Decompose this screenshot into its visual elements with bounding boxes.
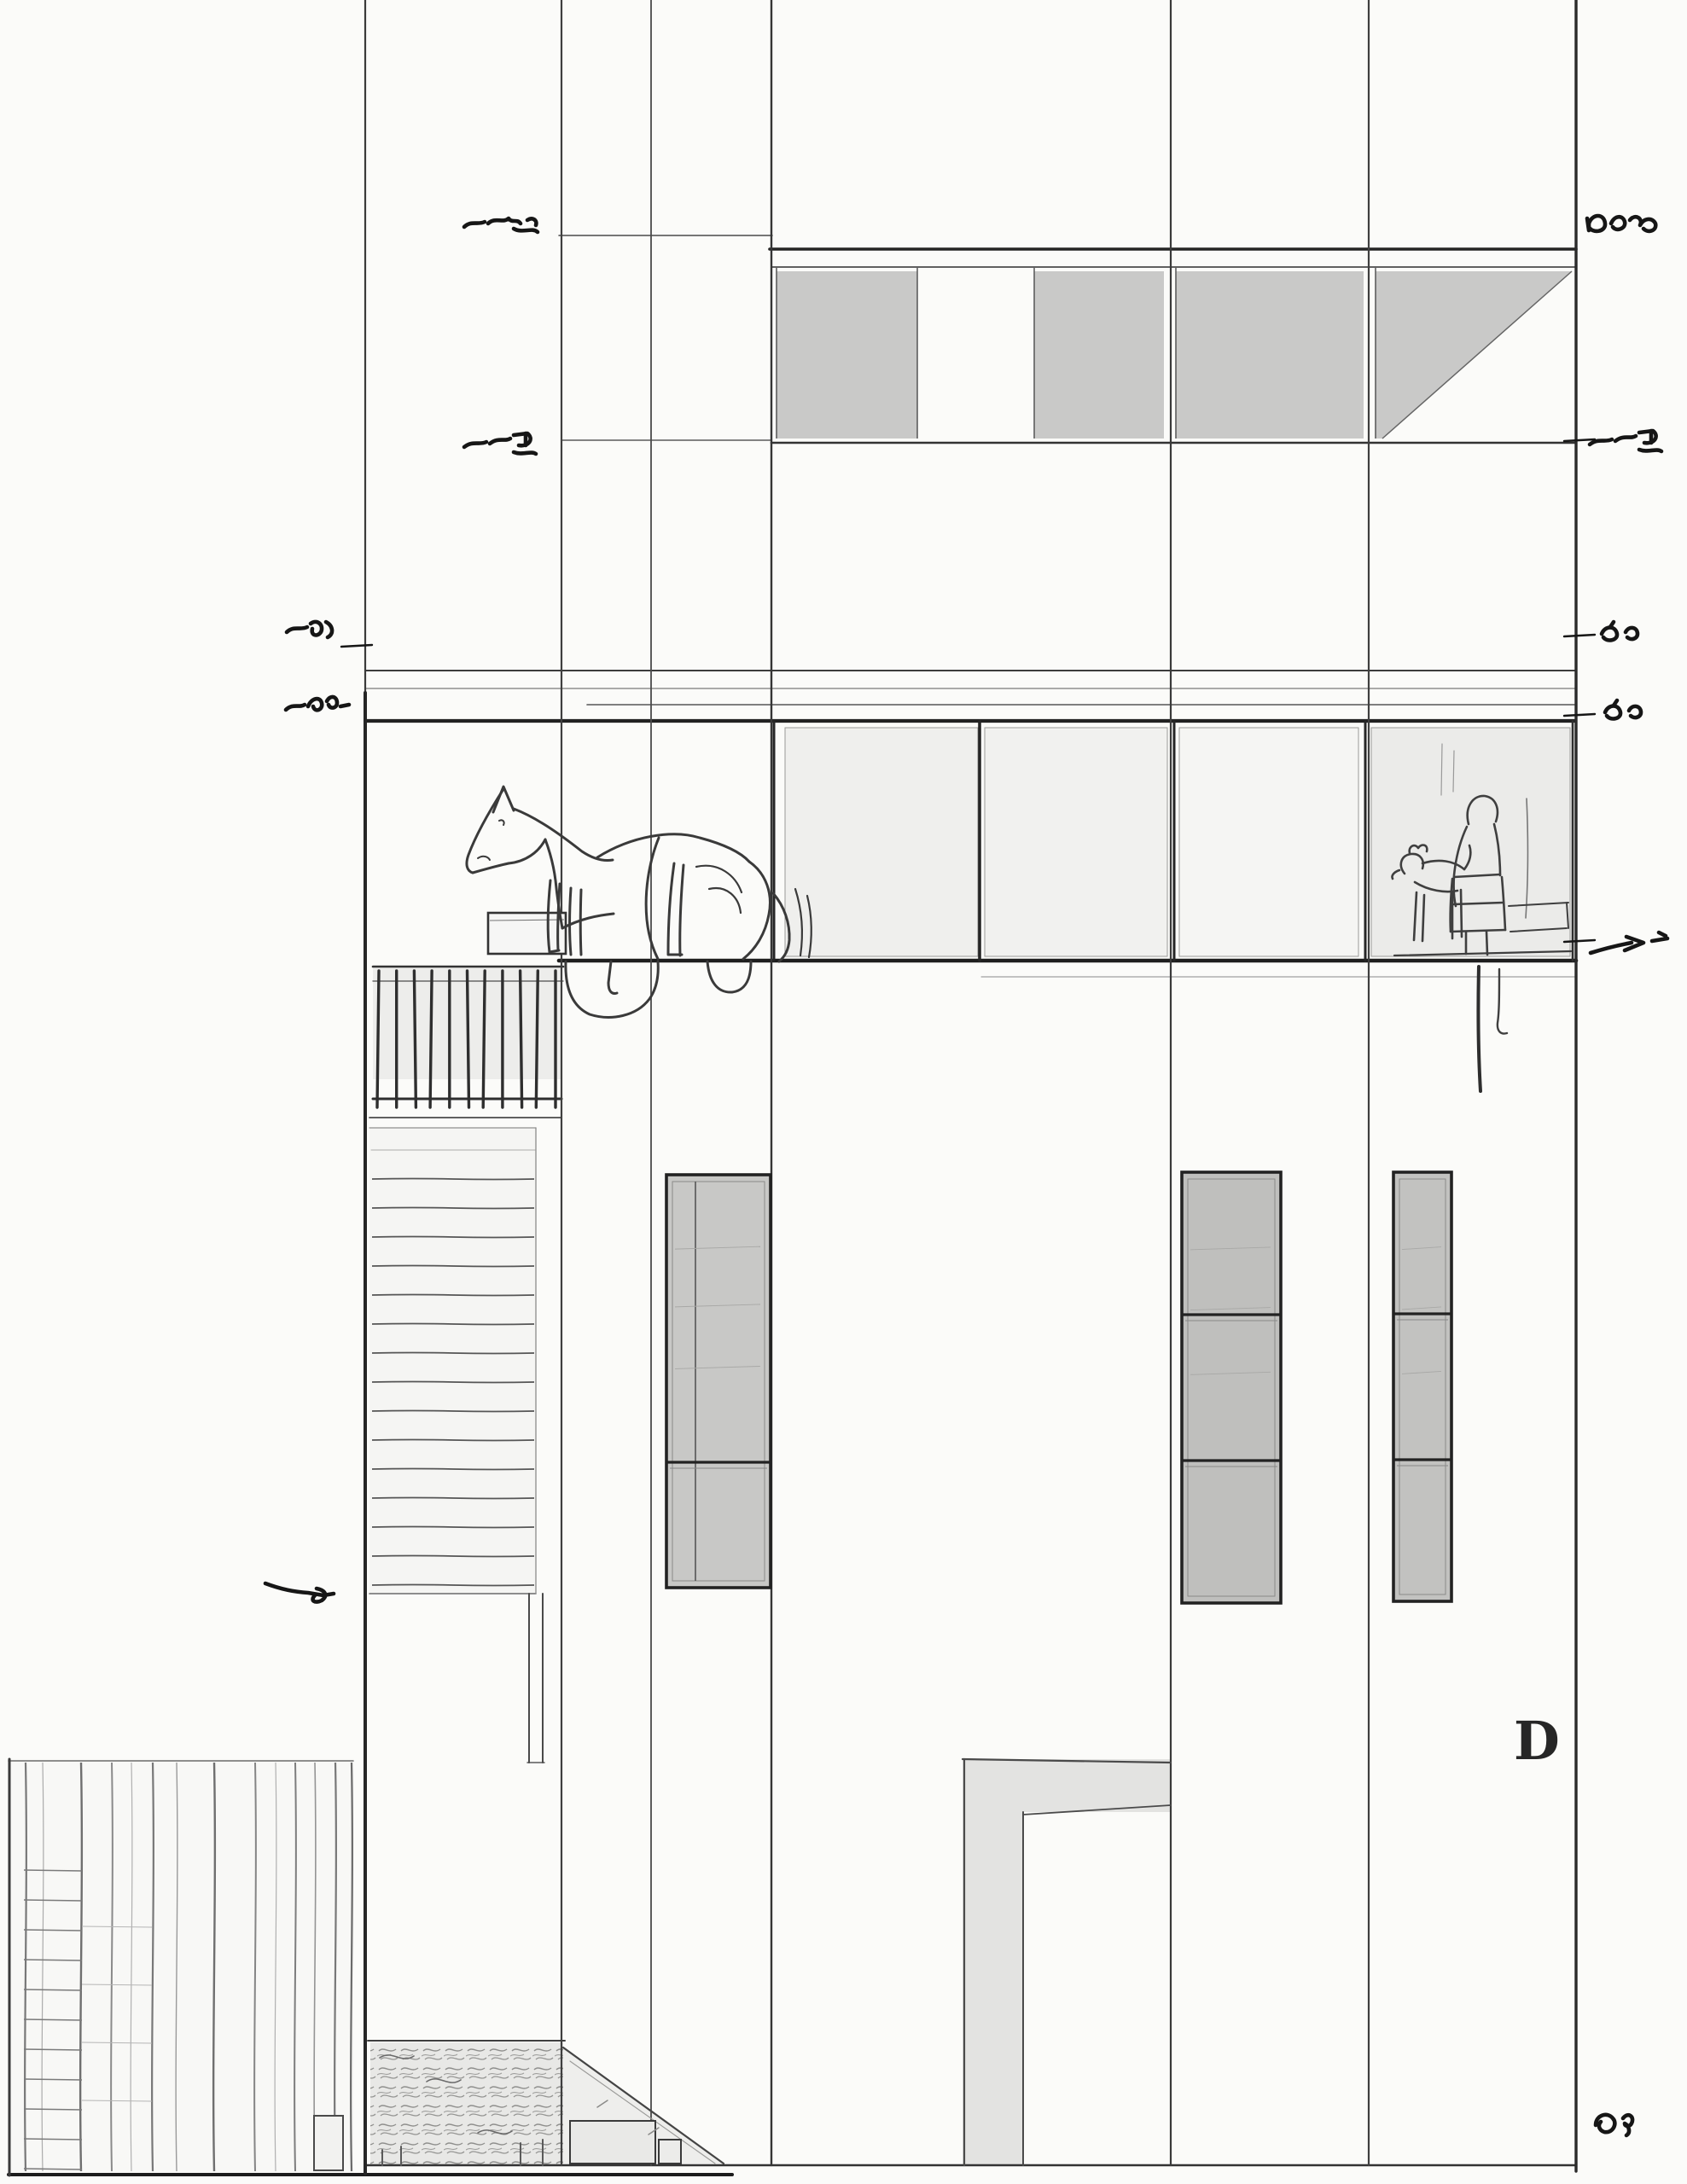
level-mark-r3 [1602, 622, 1638, 640]
ladder-rung-6 [24, 2049, 82, 2050]
elevation-drawing: D [0, 0, 1687, 2184]
level-mark-l3 [287, 622, 332, 637]
window-left-frame [666, 1175, 771, 1588]
siding-block-fill [9, 1759, 354, 2174]
horse-back [597, 834, 749, 862]
level-mark-r2 [1590, 431, 1661, 451]
curtain-pane-1 [985, 728, 1167, 956]
curtain-pane-0 [785, 728, 978, 956]
horse-rump [743, 862, 770, 959]
baluster-3 [430, 971, 432, 1107]
planter-box [488, 913, 566, 954]
horse-neck [514, 809, 613, 861]
curtain-pane-3 [1371, 728, 1570, 956]
slat-line-6 [372, 1352, 534, 1353]
ladder-rung-5 [24, 2019, 82, 2020]
slat-line-8 [372, 1410, 534, 1411]
slat-line-13 [372, 1555, 534, 1556]
upper-panel-3 [1176, 271, 1364, 439]
baluster-5 [468, 971, 469, 1107]
siding-hatch-box [314, 2116, 343, 2170]
slat-line-2 [372, 1236, 534, 1237]
window-right-frame [1393, 1172, 1451, 1601]
baluster-9 [536, 971, 538, 1107]
level-mark-l4 [286, 697, 349, 710]
level-mark-bottom-right [1596, 2115, 1632, 2135]
door-portal-fill [963, 1759, 1171, 2165]
window-left [666, 1175, 771, 1588]
slat-line-1 [372, 1207, 534, 1208]
edge-tick-l3 [341, 645, 372, 647]
baluster-6 [483, 971, 485, 1107]
ladder-rung-7 [24, 2079, 82, 2080]
wall-fills [9, 967, 1171, 2174]
window-right [1393, 1172, 1451, 1601]
ladder-rung-9 [24, 2139, 82, 2140]
baluster-2 [414, 971, 416, 1107]
ladder-rung-10 [24, 2169, 82, 2169]
punched-windows [666, 1172, 1451, 1603]
horse-hind-loop [707, 961, 751, 992]
slat-line-10 [372, 1468, 534, 1469]
level-mark-r4 [1605, 700, 1641, 718]
slat-line-14 [372, 1584, 534, 1585]
window-mid-frame [1182, 1172, 1281, 1603]
slat-line-12 [372, 1526, 534, 1527]
level-mark-l1 [464, 218, 538, 232]
ladder-rung-4 [24, 1989, 82, 1990]
slat-line-3 [372, 1265, 534, 1266]
slat-line-0 [372, 1178, 534, 1179]
baluster-0 [377, 971, 379, 1107]
curtain-pane-2 [1179, 728, 1358, 956]
slat-line-9 [372, 1439, 534, 1440]
upper-panel-triangle [1376, 271, 1572, 439]
slat-line-11 [372, 1497, 534, 1498]
horse-front-loop [566, 961, 658, 1017]
edge-tick-r4 [1564, 714, 1595, 716]
upper-window-band [777, 268, 1572, 439]
baluster-8 [521, 971, 522, 1107]
slat-line-4 [372, 1294, 534, 1295]
slat-line-5 [372, 1323, 534, 1324]
level-mark-l2 [464, 433, 536, 454]
leader-arrow-right [1591, 932, 1667, 953]
slat-line-7 [372, 1381, 534, 1382]
edge-tick-r2 [1564, 439, 1595, 441]
ladder-rung-8 [24, 2109, 82, 2110]
slat-screen-fill [369, 1128, 536, 1594]
logo-letter-d: D [1514, 1710, 1560, 1772]
hatch-structure-texture [370, 2042, 563, 2165]
ladder-rung-0 [24, 1870, 82, 1871]
leader-arrow-left [265, 1583, 334, 1602]
edge-tick-r3 [1564, 635, 1595, 636]
window-mid [1182, 1172, 1281, 1603]
upper-panel-2 [1034, 271, 1164, 439]
upper-panel-0 [777, 271, 917, 439]
ladder-rung-2 [24, 1930, 82, 1931]
ladder-rung-3 [24, 1960, 82, 1960]
ladder-rung-1 [24, 1900, 82, 1901]
level-mark-r1 [1587, 216, 1655, 231]
elevation-sheet: D [0, 0, 1687, 2184]
